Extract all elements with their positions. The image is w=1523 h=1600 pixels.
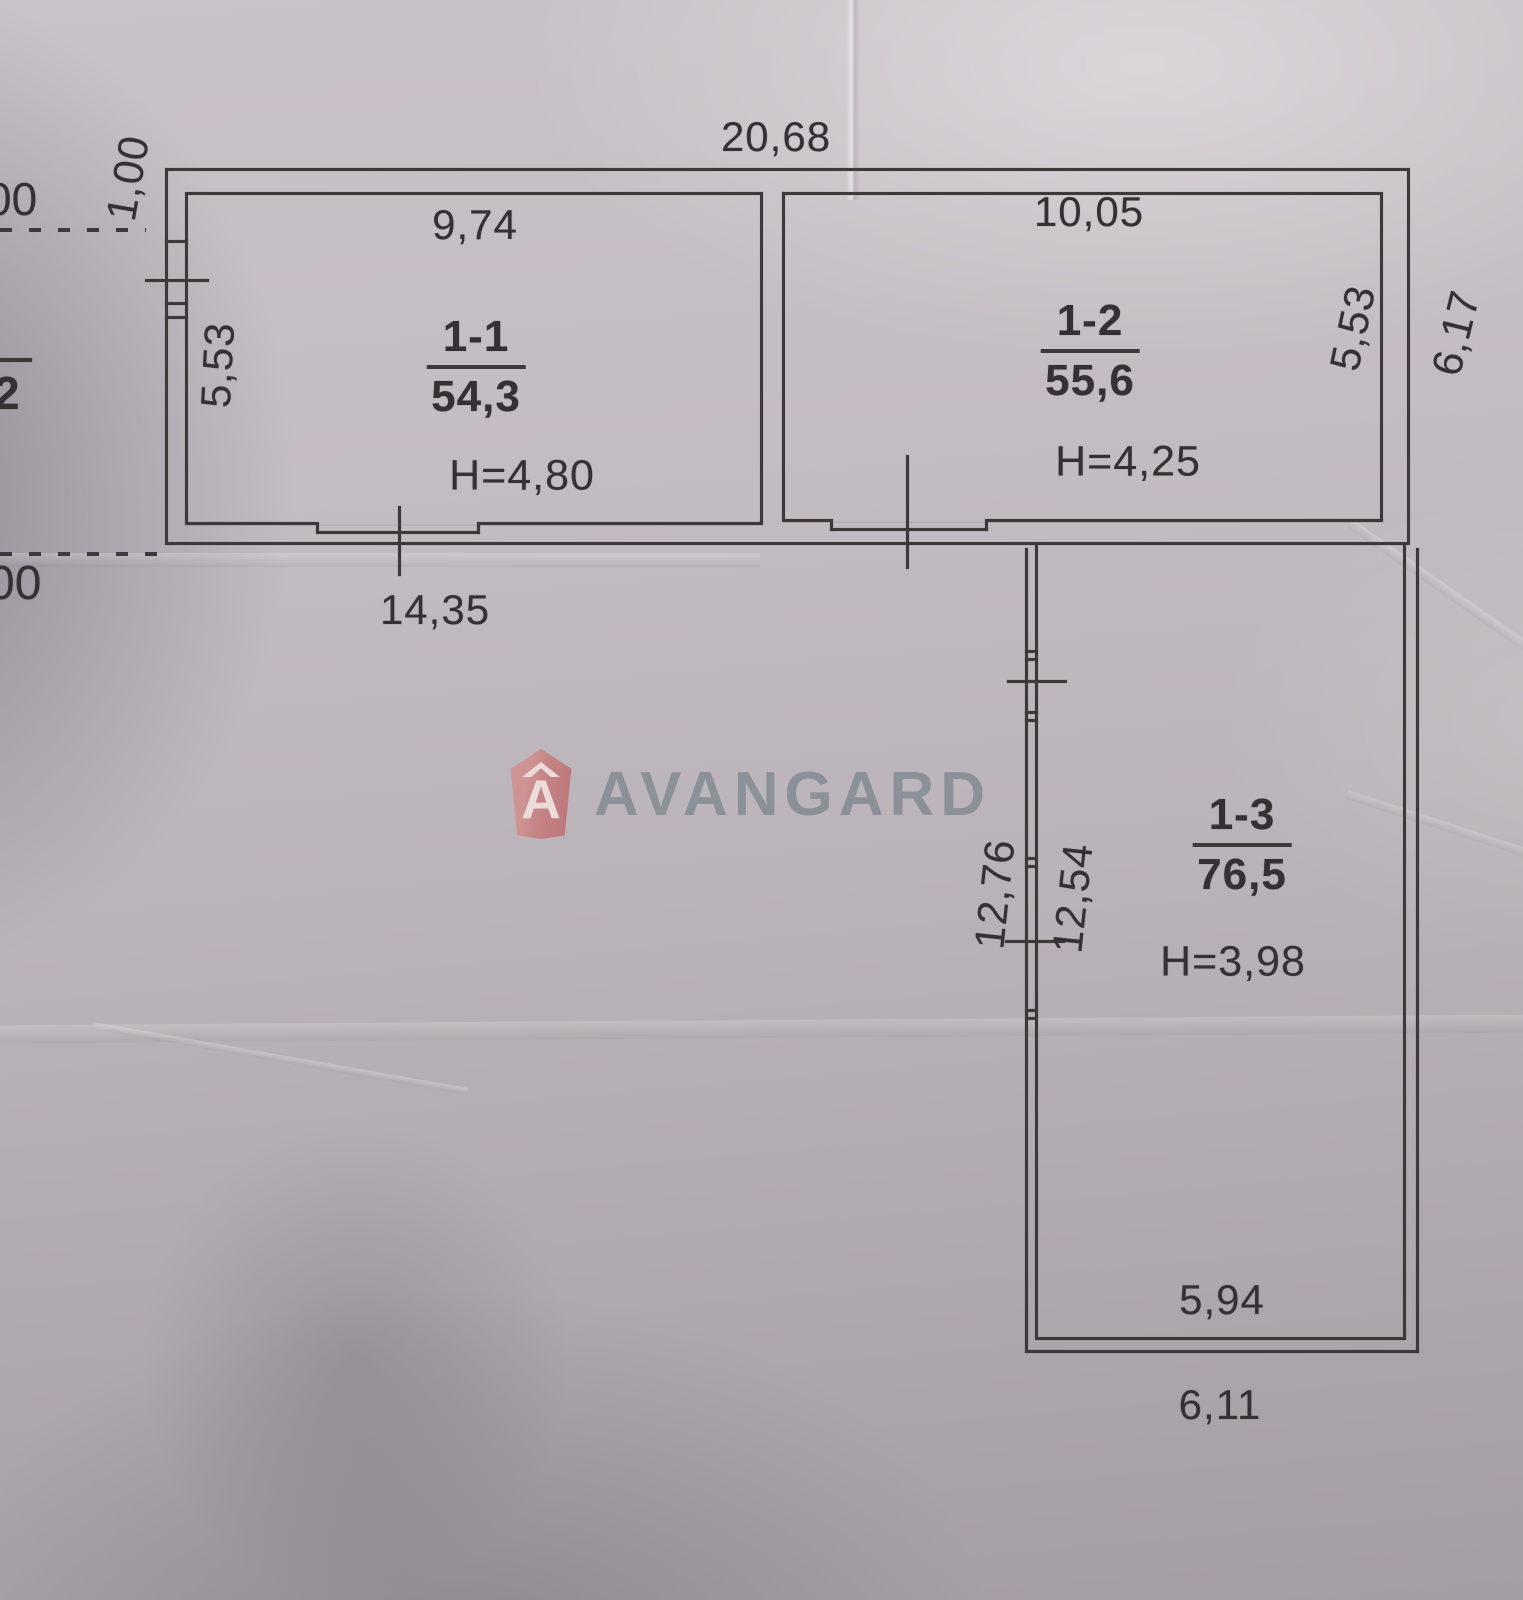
window-sill-line bbox=[830, 528, 988, 531]
window-jamb bbox=[830, 519, 833, 531]
dim-room-1-1-top: 9,74 bbox=[432, 201, 518, 249]
room-1-3-label: 1-3 76,5 bbox=[1193, 790, 1292, 900]
window-rung bbox=[165, 302, 188, 305]
room-1-1-id: 1-1 bbox=[427, 312, 526, 369]
window-rung bbox=[1025, 1017, 1038, 1020]
edge-fragment-bottom: 00 bbox=[0, 556, 41, 611]
wall-segment bbox=[188, 522, 316, 525]
dashed-line-top-left bbox=[0, 228, 146, 232]
wall-segment bbox=[785, 519, 830, 522]
dimension-tick bbox=[398, 506, 401, 576]
paper-crease bbox=[92, 1022, 467, 1095]
dim-bottom-left-width: 14,35 bbox=[380, 586, 490, 634]
window-rung bbox=[1025, 865, 1038, 868]
edge-fragment-middle: 2 bbox=[0, 366, 20, 420]
window-rung bbox=[1025, 857, 1038, 860]
window-rung bbox=[1025, 711, 1038, 714]
dim-room-1-1-left: 5,53 bbox=[192, 321, 244, 409]
dim-total-top-width: 20,68 bbox=[721, 113, 831, 161]
window-rung bbox=[1025, 658, 1038, 661]
watermark-brand-text: AVANGARD bbox=[594, 759, 991, 830]
room-1-3-area: 76,5 bbox=[1197, 850, 1287, 900]
edge-fragment-top: 00 bbox=[0, 172, 37, 226]
avangard-logo-icon: A bbox=[508, 749, 574, 839]
dim-top-left-offset: 1,00 bbox=[97, 132, 159, 225]
room-1-3-outer-wall-left bbox=[1025, 548, 1028, 1353]
room-1-2-area: 55,6 bbox=[1045, 356, 1135, 406]
dim-outer-right-height: 6,17 bbox=[1422, 286, 1489, 381]
window-rung bbox=[1025, 719, 1038, 722]
edge-fraction-line bbox=[0, 358, 32, 362]
dim-room-1-3-bottom-inner: 5,94 bbox=[1179, 1276, 1265, 1324]
dimension-tick bbox=[1007, 680, 1067, 683]
dim-room-1-3-bottom-outer: 6,11 bbox=[1179, 1381, 1262, 1429]
wall-segment bbox=[480, 522, 763, 525]
watermark-icon-letter: A bbox=[521, 772, 561, 827]
room-1-2-id: 1-2 bbox=[1041, 296, 1140, 353]
window-rung bbox=[165, 240, 188, 243]
window-jamb bbox=[477, 522, 480, 534]
room-1-3-outer-wall-bottom bbox=[1025, 1350, 1419, 1353]
floor-plan-photo: 20,68 9,74 10,05 1,00 5,53 5,53 6,17 14,… bbox=[0, 0, 1523, 1600]
room-1-1-area: 54,3 bbox=[431, 372, 521, 422]
window-jamb bbox=[316, 522, 319, 534]
window-rung bbox=[1025, 650, 1038, 653]
room-1-1-height: H=4,80 bbox=[449, 452, 595, 501]
dim-room-1-2-top: 10,05 bbox=[1034, 188, 1144, 236]
window-jamb bbox=[985, 519, 988, 531]
room-1-3-height: H=3,98 bbox=[1160, 938, 1306, 987]
room-1-1-label: 1-1 54,3 bbox=[427, 312, 526, 422]
paper-crease bbox=[140, 1120, 570, 1600]
dimension-tick bbox=[906, 455, 909, 569]
dim-room-1-3-left-outer: 12,76 bbox=[965, 837, 1024, 952]
avangard-watermark: A AVANGARD bbox=[508, 746, 991, 842]
room-1-3-id: 1-3 bbox=[1193, 790, 1292, 847]
room-1-2-label: 1-2 55,6 bbox=[1041, 296, 1140, 406]
window-rung bbox=[165, 316, 188, 319]
wall-segment bbox=[988, 519, 1383, 522]
dimension-tick bbox=[145, 279, 209, 282]
room-1-3-outer-wall-right bbox=[1416, 548, 1419, 1353]
room-1-2-height: H=4,25 bbox=[1055, 438, 1201, 487]
window-rung bbox=[1025, 1009, 1038, 1012]
